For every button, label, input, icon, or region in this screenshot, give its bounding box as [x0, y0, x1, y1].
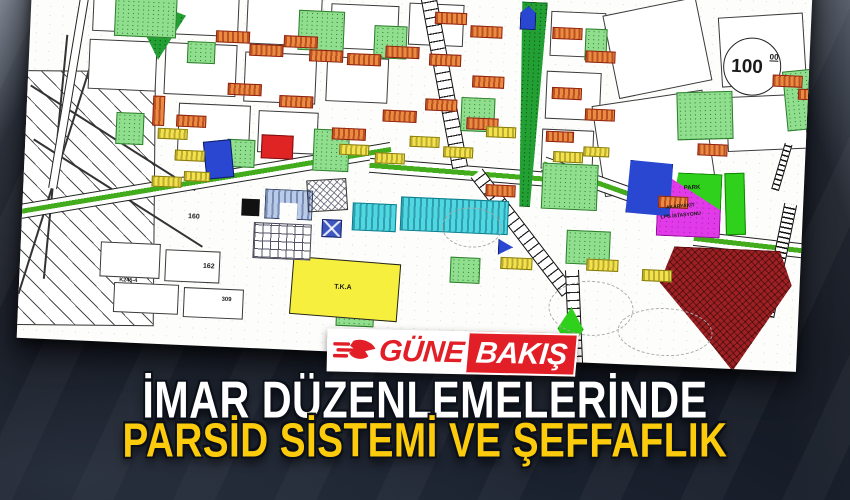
building-yellow [375, 152, 405, 164]
building [546, 131, 574, 143]
news-thumbnail: 10000PARKAKARYAKITLPG İSTASYONUT.K.A1601… [0, 0, 850, 500]
map-label: PARK [684, 185, 701, 192]
building [585, 50, 615, 63]
empty-parcel [602, 0, 712, 99]
map-label: 160 [188, 213, 200, 221]
building-yellow [339, 144, 369, 156]
map-label: 00 [769, 53, 778, 61]
building [152, 96, 165, 126]
crosshatch-zone [306, 178, 348, 212]
building-yellow [586, 259, 618, 272]
parcel [113, 282, 179, 315]
zoning-plan-map: 10000PARKAKARYAKITLPG İSTASYONUT.K.A1601… [17, 0, 814, 372]
building [470, 25, 502, 38]
building [585, 108, 615, 121]
map-label: T.K.A [334, 284, 352, 292]
building [227, 83, 261, 96]
parcel [88, 39, 158, 92]
building [332, 127, 366, 140]
building [216, 30, 250, 43]
headline-line2: PARSİD SİSTEMİ VE ŞEFFAFLIK [51, 414, 799, 469]
building [279, 95, 313, 108]
building-yellow [583, 146, 609, 157]
building [429, 54, 461, 67]
cyan-building [352, 202, 397, 232]
green-area [115, 112, 144, 145]
building [249, 44, 283, 57]
building-yellow [157, 128, 187, 140]
building [382, 110, 416, 123]
building [485, 184, 515, 197]
parcel [183, 287, 244, 320]
building [435, 12, 467, 25]
building [697, 143, 727, 156]
building-yellow [175, 150, 205, 162]
building [798, 89, 814, 101]
building [772, 75, 802, 88]
blue-x-square [321, 219, 342, 238]
building [472, 75, 504, 88]
railway [771, 143, 792, 191]
green-area [187, 41, 216, 64]
building [552, 27, 582, 40]
map-label: 309 [221, 297, 231, 303]
building-yellow [151, 176, 181, 188]
building [385, 46, 419, 59]
public-building [264, 189, 313, 221]
building-yellow [553, 151, 583, 163]
green-area [449, 257, 480, 284]
building-yellow [409, 136, 439, 148]
building [347, 53, 381, 66]
green-area [541, 163, 599, 211]
park-parcel [724, 173, 746, 236]
building [552, 87, 582, 100]
map-label: 162 [203, 263, 215, 271]
red-zone [261, 134, 294, 159]
building [309, 49, 343, 62]
building-yellow [443, 146, 473, 158]
building-yellow [184, 171, 210, 182]
logo-flash-icon [333, 337, 378, 364]
green-area [676, 91, 733, 140]
map-label: K245-4 [119, 278, 137, 284]
building [176, 115, 206, 128]
building [425, 98, 457, 111]
logo-text-prefix: GÜNE [375, 334, 467, 370]
building-yellow [642, 269, 672, 282]
building-yellow [500, 257, 532, 270]
parcel [99, 241, 160, 279]
building [284, 35, 318, 48]
cells-grid [252, 222, 312, 260]
logo-left-panel: GÜNE [327, 328, 471, 374]
green-area [114, 0, 178, 38]
map-label: 100 [731, 57, 764, 77]
building-yellow [486, 126, 516, 138]
blue-triangle [498, 239, 514, 256]
black-square [241, 198, 260, 216]
